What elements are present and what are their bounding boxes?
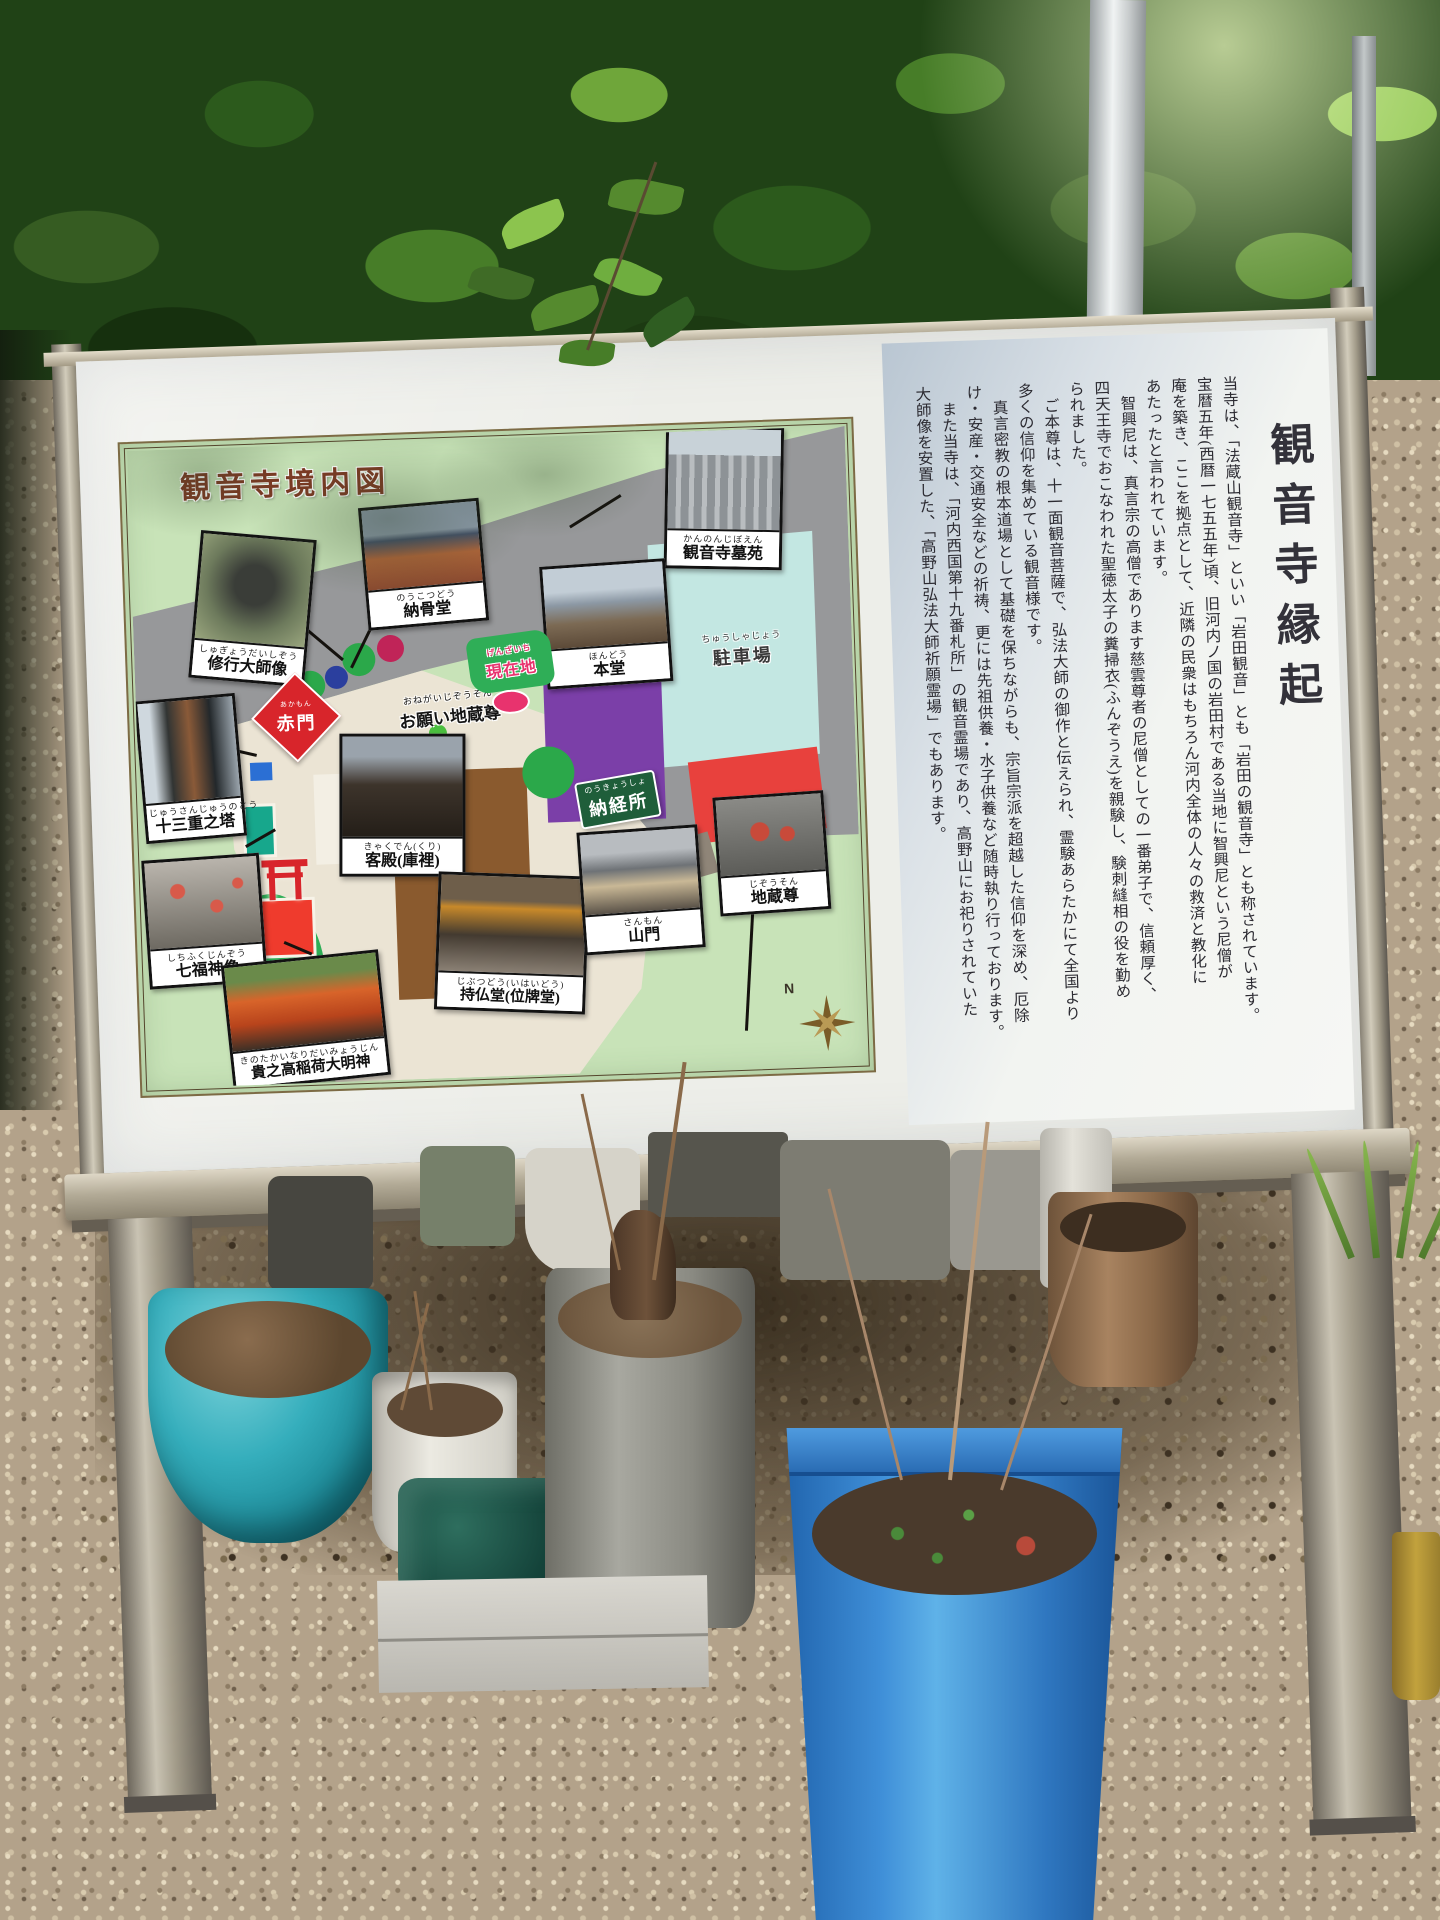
pot-soil [165, 1301, 371, 1398]
map-building-blue [250, 762, 273, 781]
map-spot-kyakuden: きゃくでん(くり) 客殿(庫裡) [339, 734, 465, 877]
terracotta-pot [1048, 1192, 1198, 1387]
map-building-inari-shrine [258, 900, 314, 956]
spot-photo-gate [580, 828, 700, 916]
spot-label: 観音寺墓苑 [669, 544, 777, 563]
spot-label: 客殿(庫裡) [344, 853, 460, 871]
akamon-label: 赤門 [276, 709, 317, 736]
map-spot-nokotsudo: のうこつどう 納骨堂 [358, 498, 489, 631]
spot-photo-cemetery [667, 428, 781, 530]
spot-caption: じぶつどう(いはいどう) 持仏堂(位牌堂) [437, 970, 583, 1011]
yellow-pot-edge [1392, 1532, 1440, 1700]
blue-plastic-pot [772, 1428, 1137, 1920]
spot-caption: きゃくでん(くり) 客殿(庫裡) [342, 837, 462, 874]
spot-photo-guest-hall [342, 737, 462, 837]
engi-title: 観音寺縁起 [1255, 420, 1329, 722]
background-pot [420, 1146, 515, 1246]
grass-blade [1361, 1140, 1380, 1258]
grounds-map-panel: 観音寺境内図 しゅぎょうだいしぞう 修行大師像 のうこつどう 納骨堂 [118, 417, 876, 1098]
map-title: 観音寺境内図 [179, 456, 390, 507]
map-spot-jusanju-no-to: じゅうさんじゅうのとう 十三重之塔 [134, 693, 247, 844]
spot-caption: じぞうそん 地蔵尊 [721, 869, 828, 913]
spot-label: 持仏堂(位牌堂) [439, 986, 580, 1007]
concrete-block [377, 1575, 709, 1693]
background-pot [268, 1176, 373, 1291]
background-pot [780, 1140, 950, 1280]
spot-caption: じゅうさんじゅうのとう 十三重之塔 [146, 796, 244, 841]
spot-photo-ossuary [361, 501, 483, 591]
spot-caption: ほんどう 本堂 [548, 641, 670, 686]
spot-photo-seven-gods [144, 856, 262, 950]
spot-photo-jibutsudo [438, 874, 586, 975]
sign-leg-right [1291, 1170, 1412, 1821]
map-spot-kannonji-boen: かんのんじぼえん 観音寺墓苑 [664, 426, 784, 570]
akamon-text: あかもん 赤門 [265, 686, 327, 748]
compass-rose-icon: N [798, 994, 856, 1052]
compass-north-label: N [784, 980, 795, 996]
spot-photo-statue [195, 533, 314, 647]
spot-furigana: きゃくでん(くり) [344, 840, 460, 853]
map-spot-hondo: ほんどう 本堂 [539, 558, 673, 689]
spot-photo-inari-torii [224, 953, 384, 1052]
gray-pot [545, 1268, 755, 1628]
map-spot-shugyo-daishi-zo: しゅぎょうだいしぞう 修行大師像 [188, 530, 316, 687]
map-label-genzaichi: げんざいち 現在地 [465, 628, 556, 695]
map-spot-jizoson: じぞうそん 地蔵尊 [712, 790, 831, 916]
grass-tuft [1338, 1108, 1440, 1258]
engi-columns: 当寺は、「法蔵山観音寺」といい「岩田観音」とも「岩田の観音寺」とも称されています… [893, 375, 1262, 1103]
spot-photo-main-hall [542, 561, 667, 649]
spot-photo-jizo [716, 793, 826, 876]
spot-photo-pagoda [137, 696, 240, 804]
pot-soil-with-seedlings [812, 1472, 1097, 1595]
engi-text-panel: 観音寺縁起 当寺は、「法蔵山観音寺」といい「岩田観音」とも「岩田の観音寺」とも称… [882, 328, 1355, 1125]
map-spot-kinotaka-inari: きのたかいなりだいみょうじん 貴之高稲荷大明神 [221, 949, 391, 1088]
map-label-chushajo: ちゅうしゃじょう 駐車場 [681, 626, 803, 673]
spot-caption: かんのんじぼえん 観音寺墓苑 [667, 528, 780, 567]
map-spot-sanmon: さんもん 山門 [576, 824, 705, 955]
map-spot-jibutsudo: じぶつどう(いはいどう) 持仏堂(位牌堂) [434, 871, 590, 1014]
grass-blade [1396, 1141, 1421, 1259]
spot-caption: さんもん 山門 [585, 907, 702, 952]
torii-gate-icon [261, 859, 308, 901]
map-canvas: 観音寺境内図 しゅぎょうだいしぞう 修行大師像 のうこつどう 納骨堂 [127, 426, 867, 1089]
temple-sign-photo: { "map": { "title": "観音寺境内図", "compass":… [0, 0, 1440, 1920]
grass-blade [1418, 1149, 1440, 1260]
